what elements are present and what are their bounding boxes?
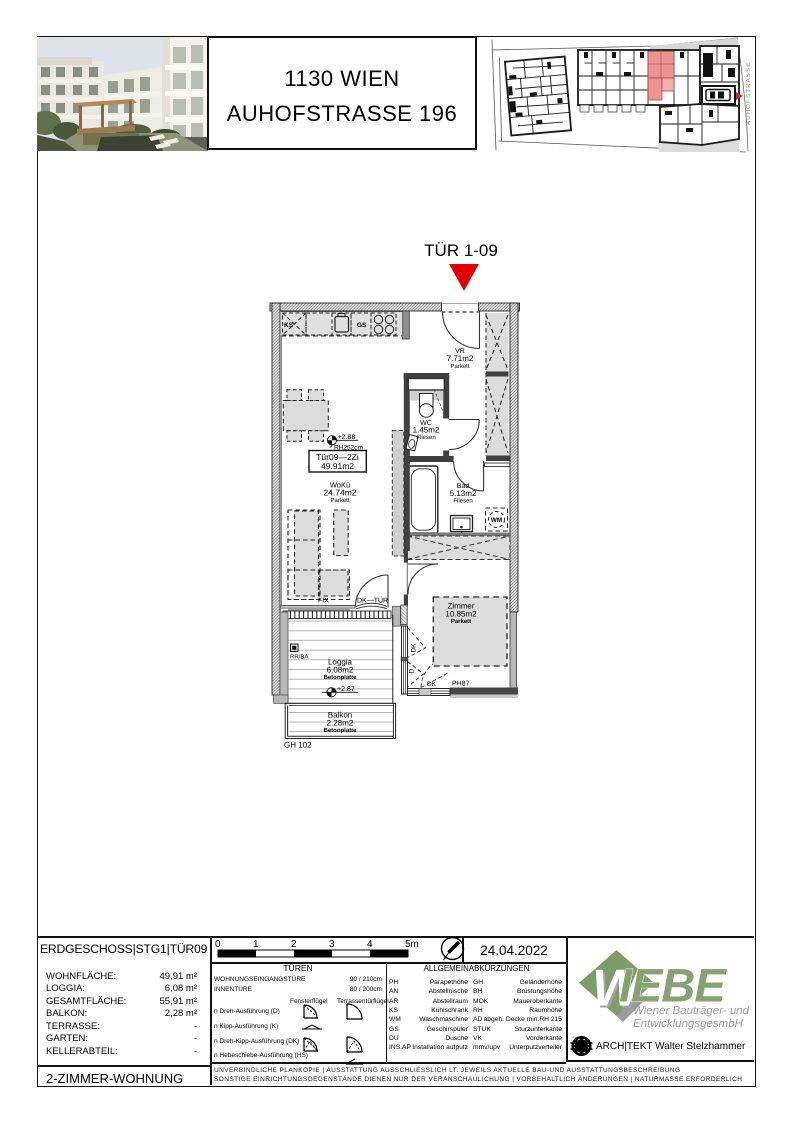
svg-text:1.45m2: 1.45m2: [413, 426, 440, 435]
svg-text:GS: GS: [357, 322, 367, 329]
svg-text:RR/BA: RR/BA: [290, 654, 308, 661]
svg-text:DK: DK: [427, 681, 437, 688]
svg-text:Betonplatte: Betonplatte: [324, 727, 358, 734]
svg-text:GH 102: GH 102: [284, 741, 312, 750]
svg-text:DK: DK: [411, 643, 418, 653]
svg-text:3: 3: [329, 939, 335, 950]
svg-text:24.74m2: 24.74m2: [323, 488, 356, 498]
svg-text:EntwicklungsgesmbH: EntwicklungsgesmbH: [633, 1018, 744, 1030]
svg-text:2: 2: [291, 939, 297, 950]
svg-text:AUHOFSTRASSE: AUHOFSTRASSE: [745, 62, 752, 125]
svg-text:Parkett: Parkett: [451, 618, 471, 625]
svg-text:IEBE: IEBE: [619, 959, 727, 1012]
svg-text:49.91m2: 49.91m2: [321, 461, 354, 471]
svg-text:WM: WM: [491, 517, 503, 524]
svg-text:1: 1: [253, 939, 259, 950]
svg-text:Betonplatte: Betonplatte: [324, 674, 358, 681]
svg-text:Parkett: Parkett: [330, 497, 349, 504]
svg-text:0: 0: [215, 939, 221, 950]
svg-text:Wiener Bauträger- und: Wiener Bauträger- und: [633, 1005, 750, 1017]
svg-text:Parkett: Parkett: [450, 363, 469, 370]
svg-text:KS: KS: [284, 322, 294, 329]
svg-text:Fliesen: Fliesen: [416, 434, 435, 441]
svg-text:7.71m2: 7.71m2: [447, 354, 474, 363]
svg-text:FIX: FIX: [318, 598, 329, 605]
svg-text:2.28m2: 2.28m2: [327, 719, 354, 728]
svg-text:PH87: PH87: [452, 681, 470, 688]
svg-text:6.08m2: 6.08m2: [327, 666, 354, 675]
svg-text:5m: 5m: [405, 939, 419, 950]
svg-text:4: 4: [367, 939, 373, 950]
svg-text:5.13m2: 5.13m2: [450, 489, 477, 498]
svg-text:ARCH|TEKT Walter Stelzhammer: ARCH|TEKT Walter Stelzhammer: [596, 1041, 746, 1052]
svg-text:10.85m2: 10.85m2: [445, 610, 477, 619]
svg-text:Fliesen: Fliesen: [453, 498, 472, 505]
svg-text:D: D: [409, 668, 416, 673]
